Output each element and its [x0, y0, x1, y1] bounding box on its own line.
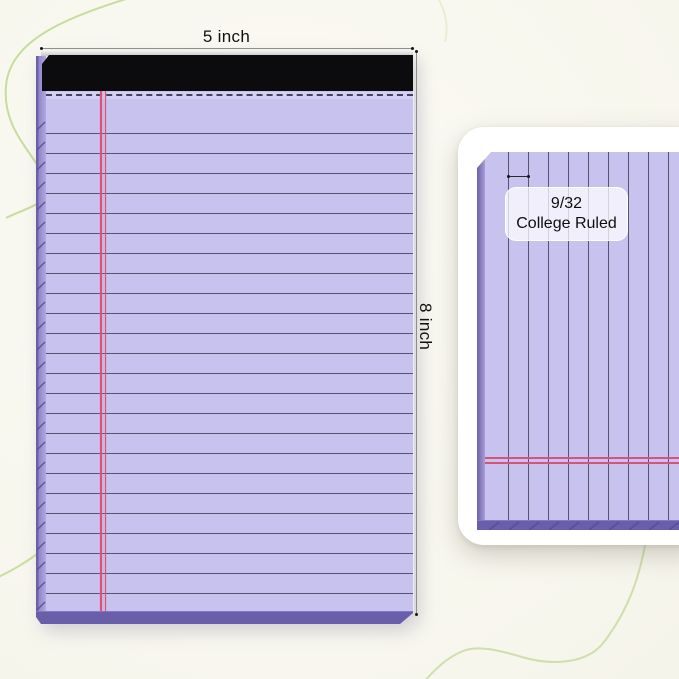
spine-edge — [36, 56, 46, 611]
dimension-endpoint-icon — [40, 47, 43, 50]
spacing-arrow-endpoint — [527, 175, 530, 178]
decorative-curve-bottom-left — [0, 552, 40, 579]
margin-line — [100, 91, 102, 611]
dimension-endpoint-icon — [415, 613, 418, 616]
bottom-edge — [36, 611, 413, 625]
ruling-size-text: 9/32 — [551, 194, 582, 214]
closeup-bottom-edge — [477, 520, 679, 531]
closeup-margin-line — [485, 457, 679, 459]
notepad-front-view — [36, 51, 413, 624]
ruled-paper — [46, 91, 414, 611]
ruling-detail-card: 9/32 College Ruled — [458, 127, 679, 545]
closeup-margin-line — [485, 462, 679, 464]
spine-page-ticks — [36, 112, 46, 612]
margin-line — [105, 91, 107, 611]
dimension-endpoint-icon — [415, 50, 418, 53]
height-dimension-label: 8 inch — [415, 303, 435, 350]
line-spacing-arrow-icon — [508, 175, 529, 178]
ruling-type-text: College Ruled — [516, 214, 617, 234]
decorative-curve-top-right — [437, 0, 447, 42]
width-dimension-label: 5 inch — [180, 27, 273, 47]
dimension-endpoint-icon — [411, 47, 414, 50]
spacing-arrow-endpoint — [507, 175, 510, 178]
width-dimension-line — [41, 48, 413, 49]
product-image-scene: 5 inch 8 inch — [0, 0, 679, 679]
decorative-curve-bottom-right — [424, 540, 646, 679]
spacing-arrow-bar — [508, 176, 529, 177]
binding-strip — [42, 55, 413, 91]
closeup-spine-edge — [477, 152, 485, 530]
closeup-page-ticks — [485, 521, 679, 531]
ruling-spec-label: 9/32 College Ruled — [505, 187, 628, 241]
